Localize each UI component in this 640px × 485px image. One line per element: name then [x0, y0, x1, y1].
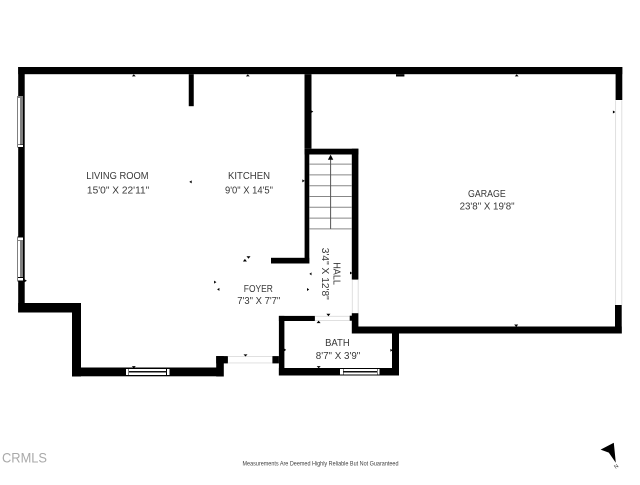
svg-text:23'8" X 19'8": 23'8" X 19'8" [460, 201, 515, 212]
svg-text:GARAGE: GARAGE [468, 189, 506, 200]
svg-text:15'0" X 22'11": 15'0" X 22'11" [87, 186, 150, 197]
svg-text:BATH: BATH [325, 338, 350, 349]
svg-text:9'0" X 14'5": 9'0" X 14'5" [225, 186, 273, 197]
svg-text:8'7" X 3'9": 8'7" X 3'9" [316, 351, 361, 362]
svg-text:KITCHEN: KITCHEN [228, 171, 270, 182]
svg-text:FOYER: FOYER [244, 284, 273, 295]
svg-text:CRMLS: CRMLS [2, 449, 47, 465]
svg-text:7'3" X 7'7": 7'3" X 7'7" [237, 296, 280, 307]
svg-text:HALL: HALL [330, 262, 341, 285]
svg-text:LIVING ROOM: LIVING ROOM [86, 171, 148, 182]
svg-text:3'4" X 12'8": 3'4" X 12'8" [319, 248, 330, 300]
svg-text:Measurements Are Deemed Highly: Measurements Are Deemed Highly Reliable … [243, 461, 399, 468]
